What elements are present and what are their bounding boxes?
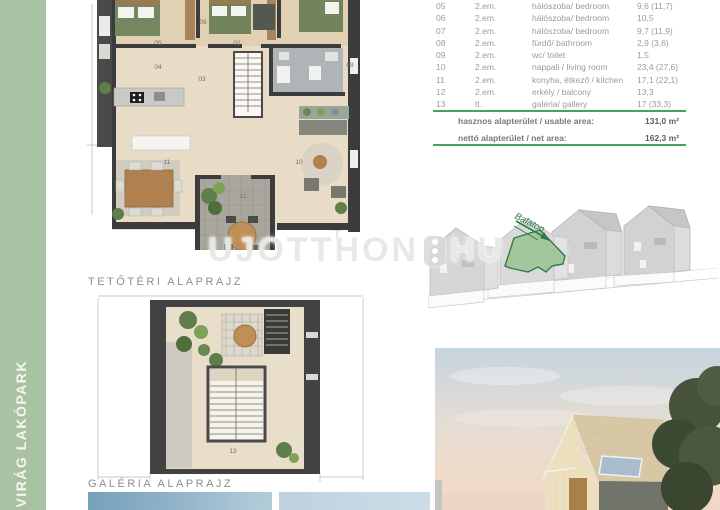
room-floor: 2.em.: [475, 0, 496, 13]
room-label-10: 10: [295, 160, 302, 166]
plan2-caption: GALÉRIA ALAPRAJZ: [88, 478, 233, 490]
room-number: 05: [436, 0, 445, 13]
watermark-right: HU: [450, 231, 505, 270]
room-area: 13,3: [637, 86, 654, 99]
room-floor: 2.em.: [475, 12, 496, 25]
room-label-04: 04: [154, 65, 161, 71]
room-name: galéria/ gallery: [532, 98, 587, 111]
area-table-row: 06 2.em. hálószoba/ bedroom 10,5: [433, 12, 689, 24]
area-table-summary: hasznos alapterület / usable area: 131,0…: [433, 112, 689, 146]
plan1-caption: TETŐTÉRI ALAPRAJZ: [88, 276, 243, 288]
floorplan-gallery-svg: [88, 290, 373, 485]
room-area: 10,5: [637, 12, 654, 25]
skylight: [599, 456, 642, 477]
summary-value: 131,0 m²: [645, 112, 679, 130]
dining-area: [112, 160, 182, 220]
room-name: hálószoba/ bedroom: [532, 0, 609, 13]
brochure-page: VIRÁG LAKÓPARK: [0, 0, 720, 510]
room-number: 13: [436, 98, 445, 111]
room-floor: 2.em.: [475, 61, 496, 74]
area-table-row: 09 2.em. wc/ toilet 1,5: [433, 49, 689, 61]
room-number: 07: [436, 25, 445, 38]
room-area: 23,4 (27,6): [637, 61, 678, 74]
room-area: 9,7 (11,9): [637, 25, 673, 38]
room-label-03: 03: [198, 77, 205, 83]
room-name: fürdő/ bathroom: [532, 37, 592, 50]
room-number: 08: [436, 37, 445, 50]
room-area: 17,1 (22,1): [637, 74, 678, 87]
room-label-08: 08: [346, 63, 353, 69]
area-table-row: 08 2.em. fürdő/ bathroom 2,9 (3,6): [433, 37, 689, 49]
project-name-vertical: VIRÁG LAKÓPARK: [13, 360, 29, 508]
stairs: [234, 52, 262, 117]
room-name: hálószoba/ bedroom: [532, 12, 609, 25]
room-number: 09: [436, 49, 445, 62]
room-number: 11: [436, 74, 445, 87]
room-name: hálószoba/ bedroom: [532, 25, 609, 38]
area-table-row: 10 2.em. nappali / living room 23,4 (27,…: [433, 61, 689, 73]
watermark: UJOTTHON HU: [208, 231, 505, 270]
room-number: 10: [436, 61, 445, 74]
photo-strip-right: [279, 492, 430, 510]
room-area: 2,9 (3,6): [637, 37, 669, 50]
floorplan-level2-svg: [85, 0, 378, 250]
room-floor: 2.em.: [475, 49, 496, 62]
lower-storey: [599, 481, 668, 510]
area-table-row: 13 tt. galéria/ gallery 17 (33,3): [433, 98, 689, 110]
balcony-door: [569, 478, 587, 510]
room-label-13: 13: [229, 449, 236, 455]
room-name: wc/ toilet: [532, 49, 565, 62]
summary-label: hasznos alapterület / usable area:: [458, 112, 594, 130]
stairs: [208, 367, 265, 441]
room-name: erkély / balcony: [532, 86, 591, 99]
room-name: konyha, étkező / kitchen: [532, 74, 623, 87]
area-table: 05 2.em. hálószoba/ bedroom 9,6 (11,7) 0…: [433, 0, 689, 110]
room-area: 17 (33,3): [637, 98, 671, 111]
watermark-logo-icon: [424, 236, 445, 266]
room-floor: 2.em.: [475, 25, 496, 38]
exterior-render: [435, 348, 720, 510]
area-table-row: 07 2.em. hálószoba/ bedroom 9,7 (11,9): [433, 25, 689, 37]
room-label-09: 09: [199, 20, 206, 26]
sidebar: VIRÁG LAKÓPARK: [0, 0, 46, 510]
area-table-row: 11 2.em. konyha, étkező / kitchen 17,1 (…: [433, 74, 689, 86]
room-name: nappali / living room: [532, 61, 608, 74]
side-terrace: [97, 0, 112, 147]
room-floor: 2.em.: [475, 86, 496, 99]
area-table-row: 12 2.em. erkély / balcony 13,3: [433, 86, 689, 98]
room-floor: tt.: [475, 98, 482, 111]
photo-strip-left: [88, 492, 272, 510]
room-floor: 2.em.: [475, 74, 496, 87]
room-label-11: 11: [164, 160, 171, 166]
room-area: 1,5: [637, 49, 649, 62]
summary-row: hasznos alapterület / usable area: 131,0…: [433, 112, 689, 129]
beds: [115, 0, 343, 36]
room-number: 06: [436, 12, 445, 25]
house-4: [614, 206, 690, 286]
watermark-left: UJOTTHON: [208, 231, 419, 270]
room-label-05: 05: [154, 41, 161, 47]
room-area: 9,6 (11,7): [637, 0, 673, 13]
area-table-row: 05 2.em. hálószoba/ bedroom 9,6 (11,7): [433, 0, 689, 12]
bathrooms: [273, 48, 343, 92]
room-label-12: 12: [239, 194, 246, 200]
table-rule-bottom: [433, 144, 686, 146]
room-number: 12: [436, 86, 445, 99]
room-label-02: 02: [233, 41, 240, 47]
room-floor: 2.em.: [475, 37, 496, 50]
area-table-rows: 05 2.em. hálószoba/ bedroom 9,6 (11,7) 0…: [433, 0, 689, 110]
